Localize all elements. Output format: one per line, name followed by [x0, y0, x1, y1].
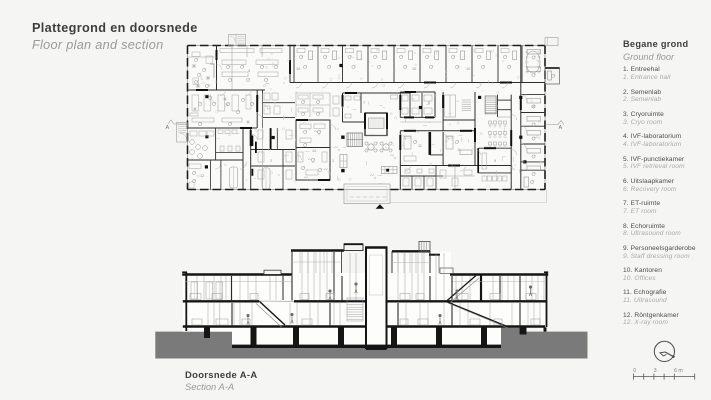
svg-text:9: 9: [494, 159, 496, 163]
svg-text:2: 2: [270, 159, 272, 163]
svg-text:3: 3: [654, 368, 657, 374]
svg-text:10: 10: [296, 67, 300, 71]
svg-text:4: 4: [248, 69, 250, 73]
svg-text:A: A: [166, 125, 170, 131]
svg-text:6 m: 6 m: [674, 368, 683, 374]
svg-text:10: 10: [531, 105, 535, 109]
svg-text:11: 11: [418, 144, 422, 148]
svg-text:0: 0: [633, 368, 636, 374]
svg-text:11: 11: [457, 148, 461, 152]
svg-text:6: 6: [428, 101, 430, 105]
svg-text:7: 7: [363, 101, 365, 105]
svg-text:12: 12: [200, 174, 204, 178]
svg-text:A: A: [559, 125, 563, 131]
svg-text:1: 1: [332, 159, 334, 163]
svg-text:10: 10: [466, 67, 470, 71]
svg-text:4: 4: [226, 103, 228, 107]
svg-text:10: 10: [312, 149, 316, 153]
svg-text:10: 10: [412, 67, 416, 71]
